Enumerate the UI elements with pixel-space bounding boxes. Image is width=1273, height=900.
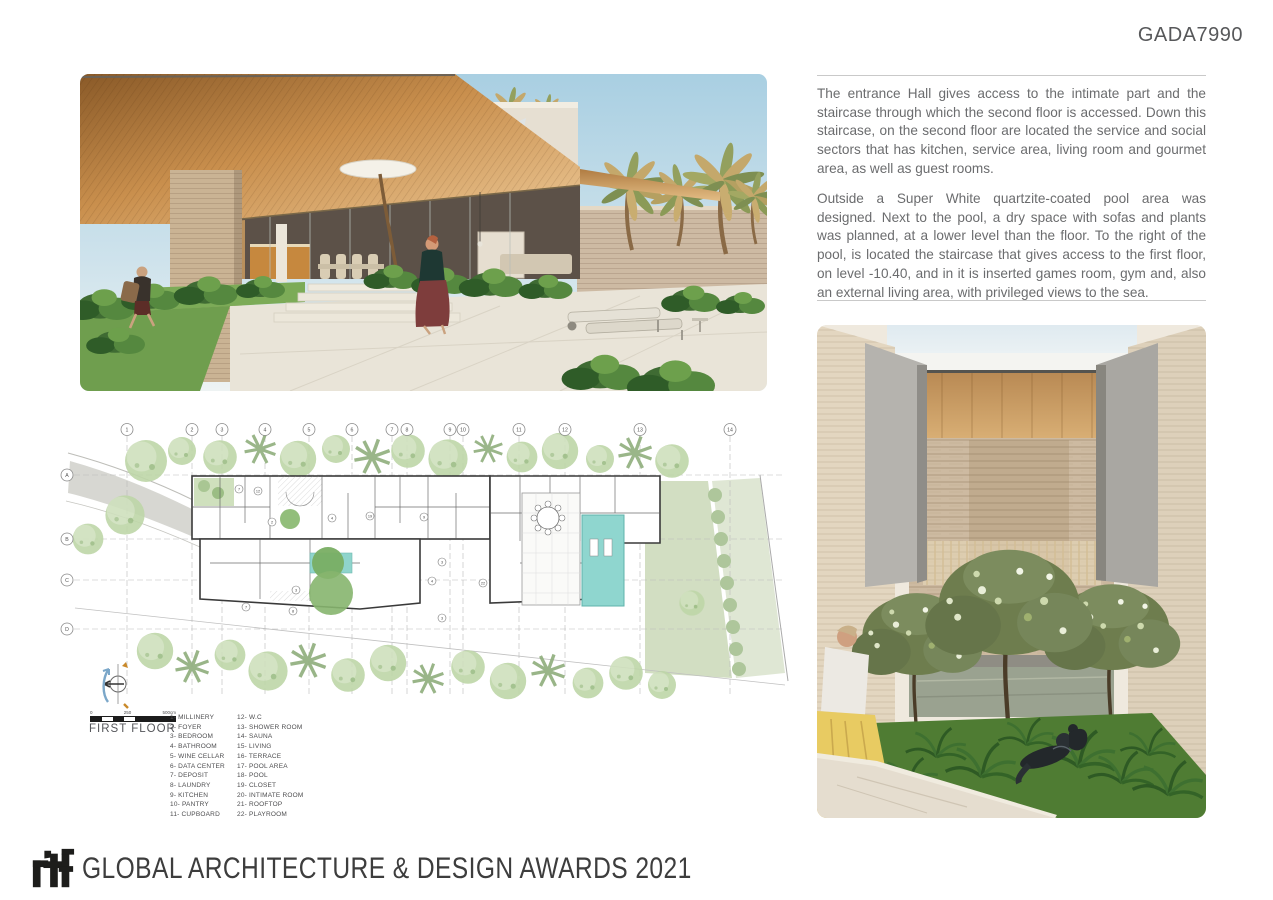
terrace [522,493,580,605]
scale-label-0: 0 [90,710,93,715]
grid-column-bubble-label: 9 [449,427,452,433]
room-marker-label: 8 [292,609,294,613]
grid-column-bubble-label: 12 [562,427,568,433]
grid-column-bubble-label: 3 [221,427,224,433]
grid-row-bubble-label: B [65,537,69,543]
legend-item: 11- CUPBOARD [170,810,227,820]
room-marker-label: 19 [368,514,372,518]
legend-item: 13- SHOWER ROOM [237,723,303,733]
plan-legend: 1- MILLINERY2- FOYER3- BEDROOM4- BATHROO… [170,713,303,820]
grid-row-bubble-label: A [65,473,69,479]
scale-label-mid: 250 [124,710,132,715]
legend-item: 7- DEPOSIT [170,771,227,781]
hero-render-image [80,74,767,391]
description-paragraph-1: The entrance Hall gives access to the in… [817,85,1206,179]
award-board-page: GADA7990 [0,0,1273,900]
project-code: GADA7990 [1138,24,1243,47]
legend-item: 5- WINE CELLAR [170,752,227,762]
footer: GLOBAL ARCHITECTURE & DESIGN AWARDS 2021 [30,846,826,892]
legend-item: 18- POOL [237,771,303,781]
rtf-logo [30,846,76,892]
legend-item: 20- INTIMATE ROOM [237,791,303,801]
grid-column-bubble-label: 11 [516,427,521,433]
first-floor-plan: 7122419378934223 1234567891011121314ABCD [60,423,790,715]
legend-item: 16- TERRACE [237,752,303,762]
courtyard-rendering-svg [817,325,1206,818]
legend-column-1: 1- MILLINERY2- FOYER3- BEDROOM4- BATHROO… [170,713,227,820]
divider-top [817,75,1206,76]
grid-column-bubble-label: 8 [406,427,409,433]
legend-item: 15- LIVING [237,742,303,752]
grid-column-bubble-label: 6 [351,427,354,433]
scale-bar: 0 250 500cm [90,710,176,722]
room-marker-label: 22 [481,581,485,585]
legend-item: 10- PANTRY [170,800,227,810]
room-marker-label: 7 [245,605,247,609]
room-marker-label: 12 [256,489,260,493]
courtyard-render-image [817,325,1206,818]
room-marker-label: 7 [238,487,240,491]
white-column [276,224,287,282]
grid-column-bubble-label: 14 [727,427,733,433]
legend-item: 1- MILLINERY [170,713,227,723]
plan-title: FIRST FLOOR [89,723,176,735]
room-marker-label: 4 [331,516,333,520]
grid-column-bubble-label: 10 [460,427,466,433]
hero-rendering-svg [80,74,767,391]
room-marker-label: 3 [441,560,443,564]
legend-item: 6- DATA CENTER [170,762,227,772]
sofa [500,254,572,274]
legend-item: 9- KITCHEN [170,791,227,801]
legend-column-2: 12- W.C13- SHOWER ROOM14- SAUNA15- LIVIN… [237,713,303,820]
grid-column-bubble-label: 5 [308,427,311,433]
grid-row-bubble-label: D [65,627,69,633]
legend-item: 2- FOYER [170,723,227,733]
legend-item: 12- W.C [237,713,303,723]
legend-item: 3- BEDROOM [170,732,227,742]
divider-bottom [817,300,1206,301]
legend-item: 14- SAUNA [237,732,303,742]
award-title: GLOBAL ARCHITECTURE & DESIGN AWARDS 2021 [82,852,692,886]
description-paragraph-2: Outside a Super White quartzite-coated p… [817,190,1206,302]
grid-column-bubble-label: 1 [126,427,129,433]
grid-row-bubble-label: C [65,578,69,584]
grid-column-bubble-label: 2 [191,427,194,433]
tree-band-bottom [137,633,676,699]
legend-item: 8- LAUNDRY [170,781,227,791]
room-marker-label: 3 [295,588,297,592]
north-arrow-icon [94,658,140,712]
scale-bar-graphic [90,716,176,722]
legend-item: 17- POOL AREA [237,762,303,772]
room-marker-label: 4 [431,579,433,583]
building-footprint [192,476,660,615]
grid-column-bubble-label: 7 [391,427,394,433]
legend-item: 19- CLOSET [237,781,303,791]
grid-column-bubble-label: 13 [637,427,643,433]
room-marker-label: 9 [423,515,425,519]
legend-item: 22- PLAYROOM [237,810,303,820]
pool [582,515,624,606]
room-marker-label: 3 [441,616,443,620]
legend-item: 21- ROOFTOP [237,800,303,810]
legend-item: 4- BATHROOM [170,742,227,752]
room-marker-label: 2 [271,520,273,524]
grid-column-bubble-label: 4 [264,427,267,433]
